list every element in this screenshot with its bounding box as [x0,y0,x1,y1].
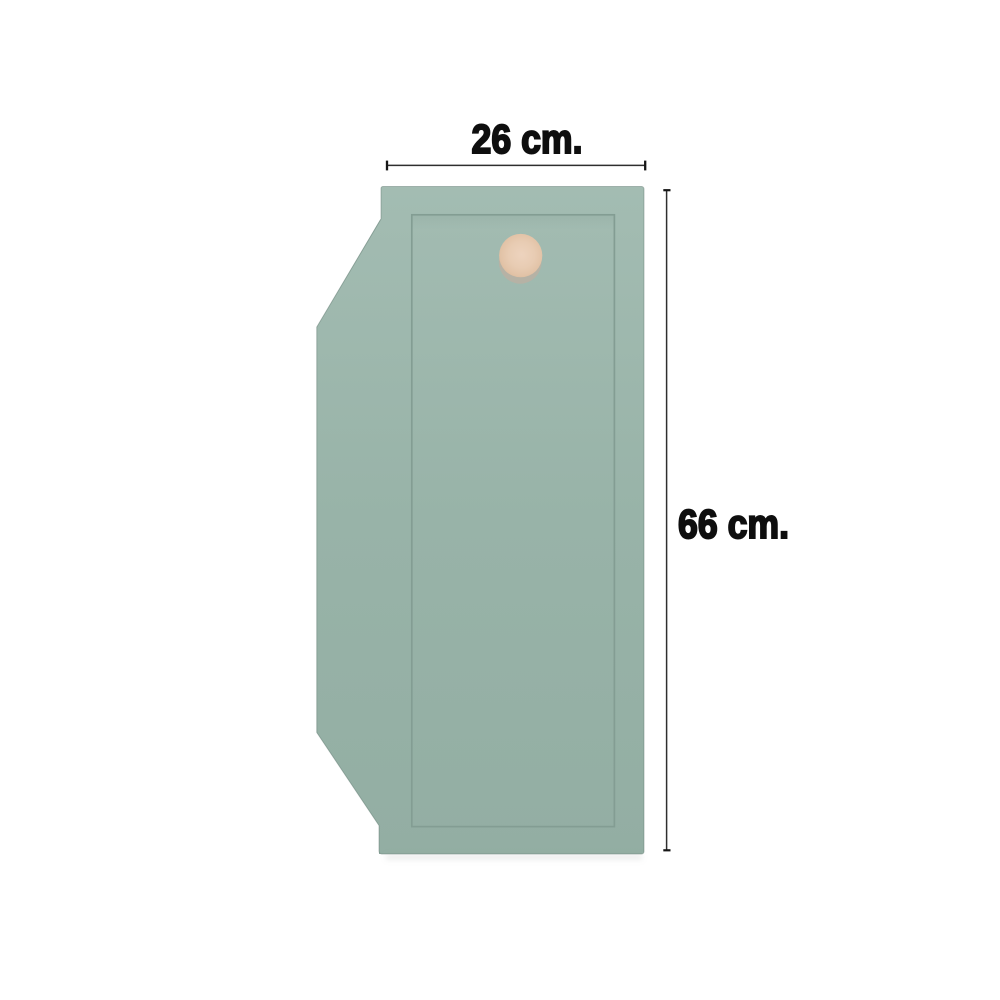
svg-text:66 cm.: 66 cm. [678,502,789,548]
svg-text:26 cm.: 26 cm. [472,117,583,163]
